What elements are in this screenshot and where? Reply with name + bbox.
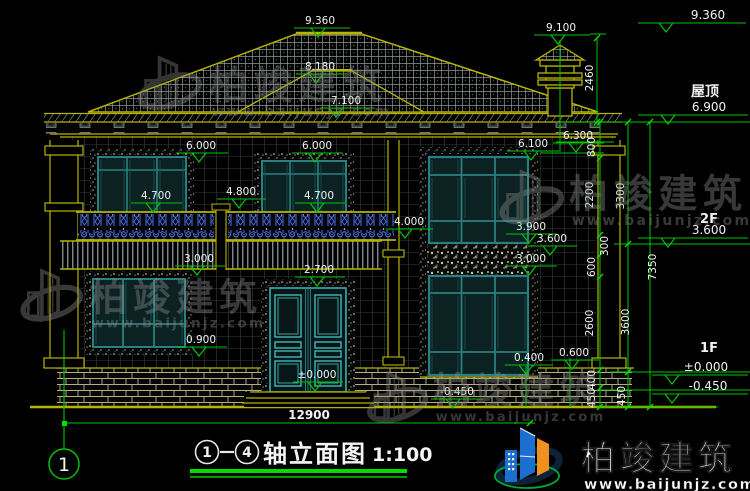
level-label: 3.600 bbox=[537, 233, 567, 245]
level-label: 6.000 bbox=[186, 140, 216, 152]
watermark-url: www.baijunjz.com bbox=[91, 316, 265, 332]
level-label: 0.600 bbox=[559, 347, 589, 359]
brand-name: 柏竣建筑 bbox=[581, 439, 737, 479]
watermark-url: www.baijunjz.com bbox=[572, 213, 750, 229]
dimension-label: 800 bbox=[586, 137, 598, 157]
text-label: 屋顶 bbox=[691, 84, 719, 100]
watermark-brand: 柏竣建筑 bbox=[433, 370, 602, 413]
dimension-label: 2460 bbox=[584, 65, 596, 92]
title-underline-thin bbox=[190, 476, 407, 478]
watermark-brand: 柏竣建筑 bbox=[90, 276, 263, 320]
level-label: 6.900 bbox=[692, 100, 726, 114]
level-label: 9.360 bbox=[691, 8, 725, 22]
level-label: 9.360 bbox=[305, 15, 335, 27]
dimension-label: 600 bbox=[586, 257, 598, 277]
watermark-brand: 柏竣建筑 bbox=[569, 172, 748, 217]
title-scale: 1:100 bbox=[372, 444, 432, 466]
elevation-drawing: 1 9.3608.1807.1009.1006.0006.0006.1006.3… bbox=[0, 0, 750, 491]
balcony-railing-left bbox=[76, 212, 216, 240]
watermark-url: www.baijunjz.com bbox=[212, 104, 392, 120]
level-label: 4.800 bbox=[226, 186, 256, 198]
dimension-label: 450 bbox=[616, 386, 628, 406]
axis-number: 1 bbox=[58, 454, 70, 476]
dimension-label: 7350 bbox=[647, 254, 659, 281]
level-label: 6.000 bbox=[302, 140, 332, 152]
level-label: 4.700 bbox=[304, 190, 334, 202]
text-label: 1F bbox=[700, 341, 718, 356]
title-axis-end: 4 bbox=[242, 445, 252, 461]
level-label: 4.000 bbox=[394, 216, 424, 228]
level-label: 0.400 bbox=[514, 352, 544, 364]
balcony-railing-right bbox=[226, 212, 396, 240]
title-text: 轴立面图 bbox=[263, 440, 367, 468]
level-label: ±0.000 bbox=[684, 360, 728, 374]
level-label: -0.450 bbox=[689, 379, 728, 393]
cad-elevation-screenshot: 1 9.3608.1807.1009.1006.0006.0006.1006.3… bbox=[0, 0, 750, 491]
level-label: ±0.000 bbox=[298, 369, 337, 381]
level-label: 0.900 bbox=[186, 334, 216, 346]
watermark-brand: 柏竣建筑 bbox=[209, 64, 388, 109]
level-label: 6.100 bbox=[518, 138, 548, 150]
dimension-label: 2600 bbox=[584, 310, 596, 337]
title-underline-thick bbox=[190, 469, 407, 473]
watermark-url: www.baijunjz.com bbox=[436, 410, 606, 425]
level-label: 3.000 bbox=[516, 253, 546, 265]
title-axis-start: 1 bbox=[202, 445, 212, 461]
entry-steps bbox=[242, 392, 374, 407]
dimension-label: 300 bbox=[599, 236, 611, 256]
dimension-label: 3600 bbox=[620, 309, 632, 336]
level-label: 4.700 bbox=[141, 190, 171, 202]
level-label: 3.000 bbox=[184, 253, 214, 265]
level-label: 2.700 bbox=[304, 264, 334, 276]
level-label: 9.100 bbox=[546, 22, 576, 34]
text-label: 12900 bbox=[288, 408, 330, 422]
brand-url: www.baijunjz.com bbox=[584, 477, 750, 491]
